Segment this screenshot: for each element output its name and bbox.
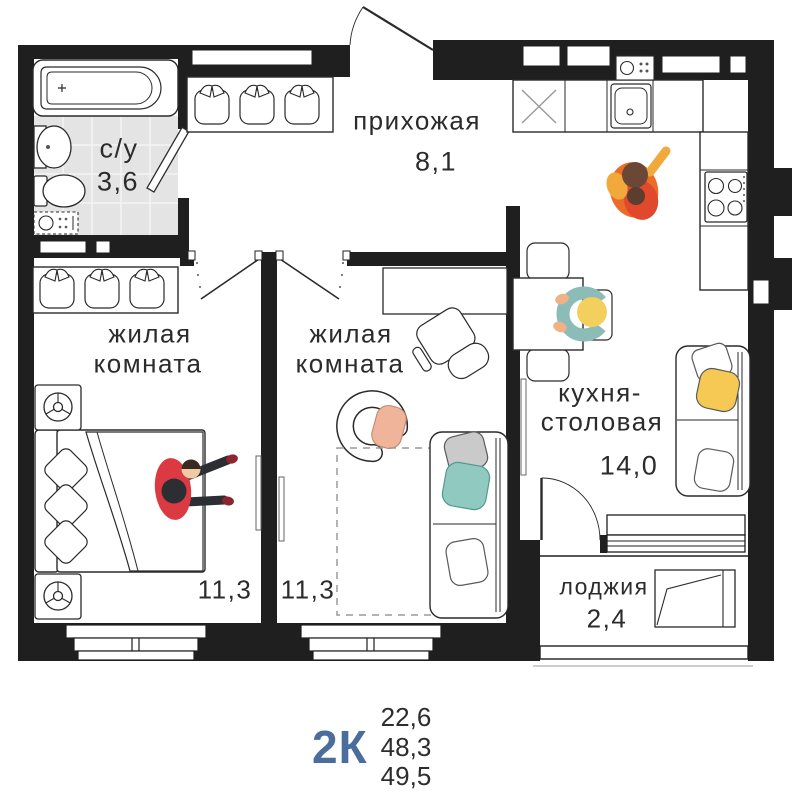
- apartment-summary: 2К 22,6 48,3 49,5: [312, 703, 431, 792]
- loggia-area: 2,4: [587, 604, 628, 635]
- apartment-type-badge: 2К: [312, 720, 368, 774]
- washing-machine-icon: [34, 212, 78, 234]
- kitchen-sofa: [676, 341, 750, 496]
- desk: [383, 268, 507, 314]
- loggia-storage-box: [655, 570, 735, 627]
- summary-area-2: 48,3: [381, 733, 432, 763]
- sink-icon: [34, 126, 71, 168]
- living-room-1-area: 11,3: [198, 575, 253, 606]
- window-kitchen-loggia: [607, 515, 745, 552]
- kitchen-area: 14,0: [600, 451, 659, 482]
- living-room-1-label-line2: комната: [94, 349, 203, 380]
- person-sitting-dining: [552, 292, 607, 335]
- armchair: [345, 399, 409, 453]
- window-living-room-1: [66, 625, 206, 660]
- kitchen-label-line2: столовая: [541, 407, 664, 438]
- person-standing-kitchen: [603, 151, 666, 224]
- hallway-area: 8,1: [415, 147, 457, 178]
- summary-area-3: 49,5: [381, 762, 432, 792]
- living-room-2-label-line2: комната: [296, 349, 405, 380]
- stove-icon: [705, 172, 747, 222]
- bathtub: [33, 60, 178, 116]
- living-room-1-label-line1: жилая: [108, 319, 191, 350]
- dining-table: [513, 278, 583, 350]
- living-room-2-label-line1: жилая: [309, 319, 392, 350]
- wardrobe-hallway: [187, 77, 333, 132]
- rug: [337, 448, 437, 615]
- living-room-2-area: 11,3: [281, 575, 336, 606]
- hallway-label: прихожая: [353, 106, 481, 137]
- microwave-icon: [616, 56, 654, 80]
- bedroom-sofa: [430, 430, 508, 618]
- office-chair: [403, 303, 493, 395]
- bathroom-label: с/у: [99, 134, 138, 165]
- loggia-label: лоджия: [559, 574, 648, 601]
- entrance-door: [350, 7, 433, 50]
- window-living-room-2: [301, 625, 441, 660]
- bathroom-area: 3,6: [97, 167, 139, 198]
- floorplan-page: с/у 3,6 прихожая 8,1 жилая комната 11,3 …: [0, 0, 800, 798]
- balcony-door: [542, 478, 601, 540]
- apartment-areas: 22,6 48,3 49,5: [381, 703, 432, 792]
- kitchen-label-line1: кухня-: [558, 378, 642, 409]
- toilet-icon: [34, 175, 85, 207]
- summary-area-1: 22,6: [381, 703, 432, 733]
- wardrobe-bedroom: [33, 267, 178, 313]
